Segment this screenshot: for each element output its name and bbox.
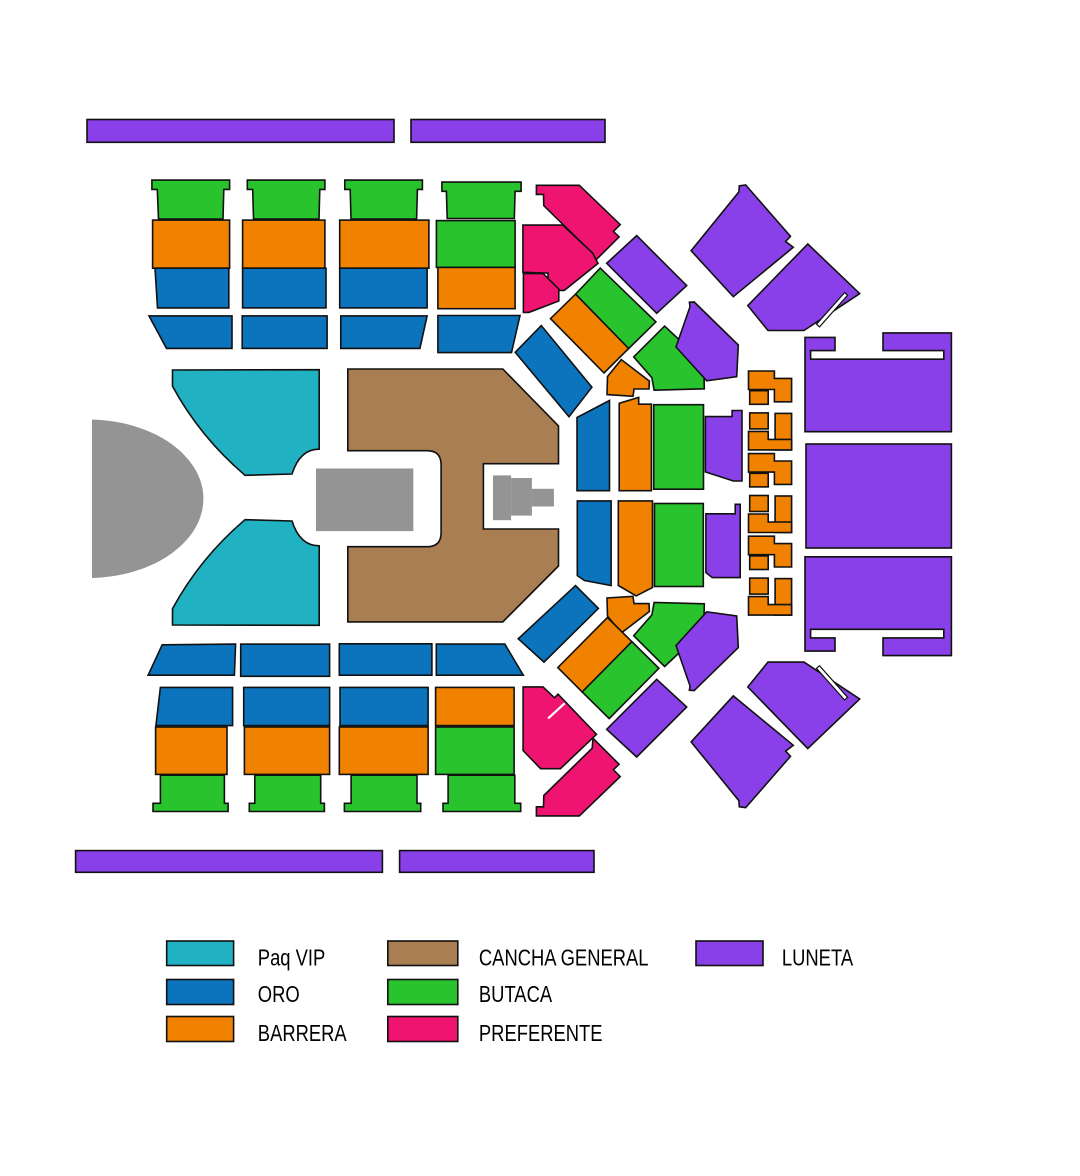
svg-text:LUNETA: LUNETA <box>782 946 853 971</box>
svg-text:BUTACA: BUTACA <box>479 982 552 1007</box>
svg-text:CANCHA GENERAL: CANCHA GENERAL <box>479 946 649 971</box>
svg-text:PREFERENTE: PREFERENTE <box>479 1021 603 1046</box>
svg-text:BARRERA: BARRERA <box>258 1021 347 1046</box>
svg-text:ORO: ORO <box>258 982 300 1007</box>
svg-text:Paq VIP: Paq VIP <box>258 946 325 971</box>
